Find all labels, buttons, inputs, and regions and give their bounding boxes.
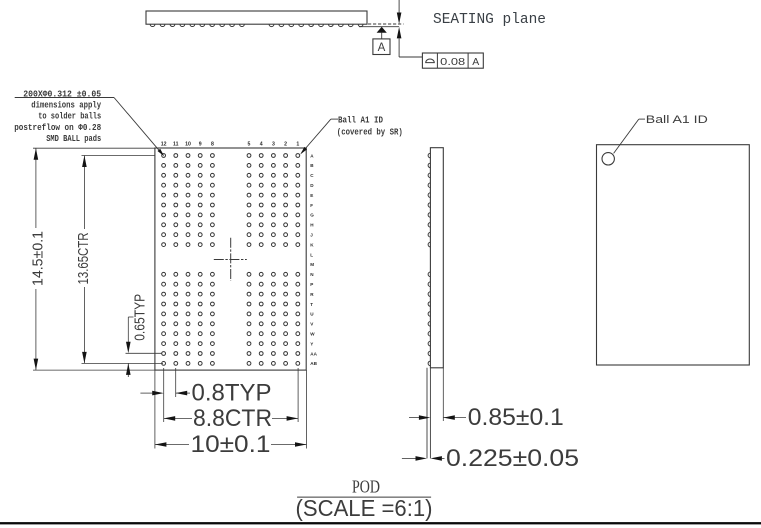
svg-text:G: G [310,213,314,218]
svg-text:F: F [310,203,313,208]
svg-text:8.8CTR: 8.8CTR [193,405,272,432]
svg-text:AA: AA [310,351,317,356]
svg-text:SEATING plane: SEATING plane [433,12,546,28]
svg-text:10: 10 [185,142,191,148]
svg-text:P: P [310,282,313,287]
svg-text:A: A [472,56,479,68]
svg-text:dimensions apply: dimensions apply [31,100,101,111]
svg-text:SMD BALL pads: SMD BALL pads [46,133,101,144]
svg-text:11: 11 [173,142,179,148]
svg-text:12: 12 [161,142,167,148]
svg-text:W: W [310,332,315,337]
svg-text:AB: AB [310,361,317,366]
svg-text:8: 8 [211,142,214,148]
svg-text:A: A [378,42,386,54]
svg-text:to solder balls: to solder balls [38,111,101,122]
svg-text:E: E [310,193,313,198]
svg-text:0.225±0.05: 0.225±0.05 [446,445,579,472]
svg-text:(SCALE =6:1): (SCALE =6:1) [296,495,433,521]
svg-text:Ball A1 ID: Ball A1 ID [338,115,383,126]
svg-text:postreflow on Φ0.28: postreflow on Φ0.28 [14,122,101,133]
svg-text:(covered by SR): (covered by SR) [337,127,403,138]
svg-text:M: M [310,262,314,267]
svg-text:T: T [310,302,313,307]
svg-text:L: L [310,252,313,257]
svg-text:3: 3 [272,142,275,148]
svg-text:2: 2 [284,142,287,148]
svg-text:9: 9 [199,142,202,148]
svg-text:0.8TYP: 0.8TYP [192,380,272,407]
svg-text:0.85±0.1: 0.85±0.1 [468,404,564,431]
svg-text:0.65TYP: 0.65TYP [132,294,149,341]
svg-text:1: 1 [296,142,299,148]
svg-text:0.08: 0.08 [440,56,465,68]
svg-text:4: 4 [260,142,263,148]
svg-text:5: 5 [248,142,251,148]
svg-text:J: J [310,233,313,238]
svg-text:14.5±0.1: 14.5±0.1 [30,231,47,286]
svg-text:13.65CTR: 13.65CTR [75,232,92,284]
svg-text:10±0.1: 10±0.1 [191,431,271,458]
svg-text:Y: Y [310,341,313,346]
svg-text:POD: POD [352,476,380,496]
svg-text:Ball A1 ID: Ball A1 ID [646,114,708,126]
